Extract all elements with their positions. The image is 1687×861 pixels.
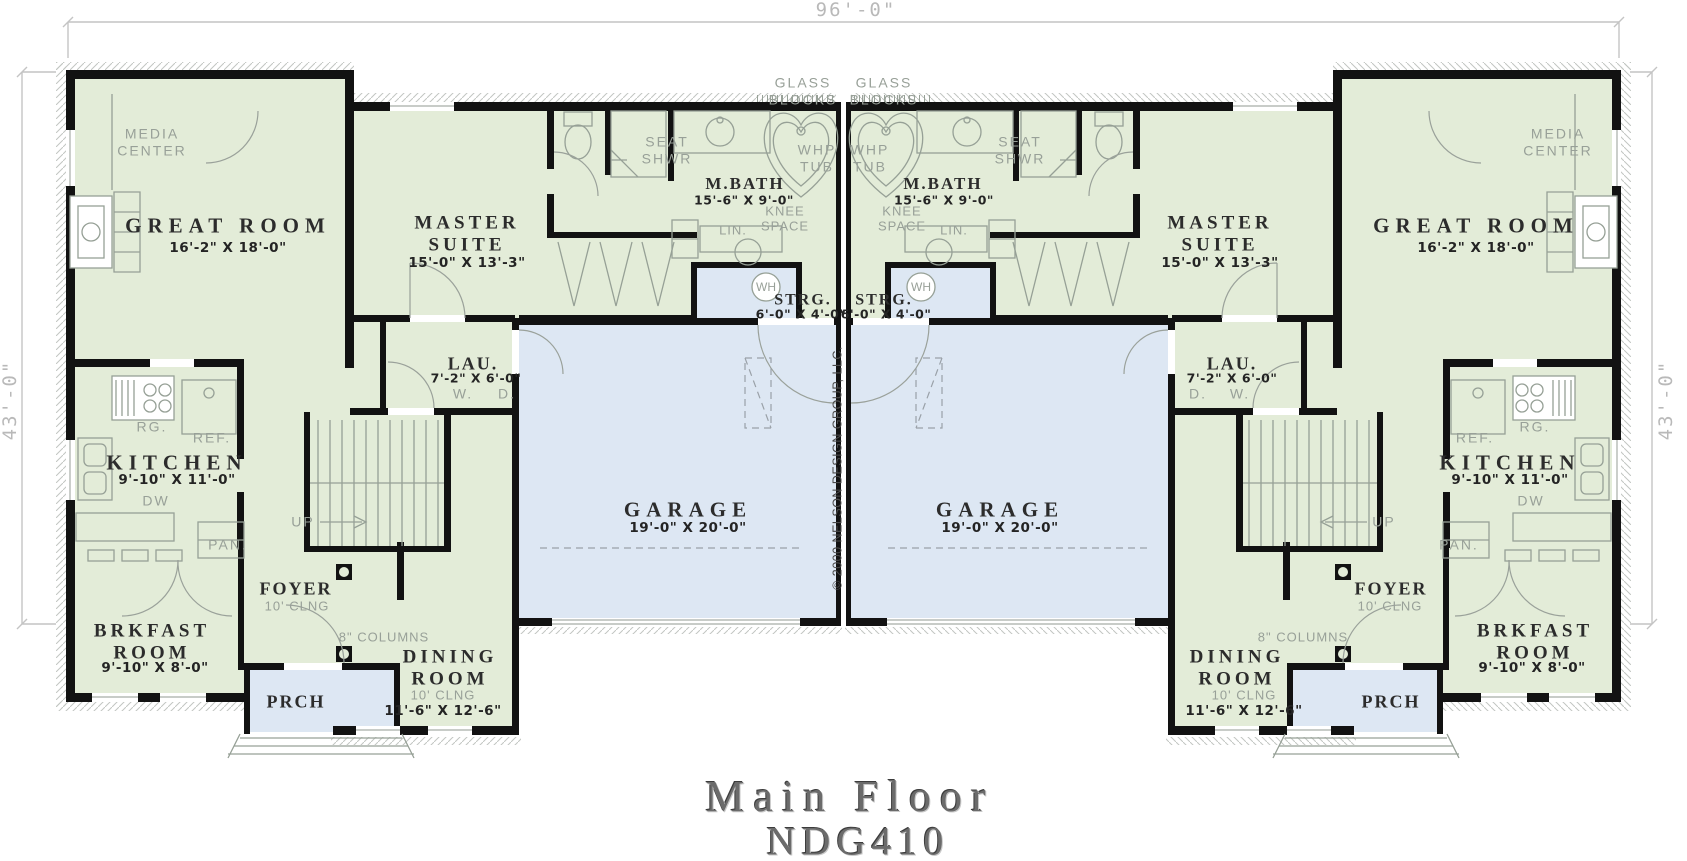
left-unit	[56, 62, 842, 758]
right-unit	[845, 62, 1631, 758]
right-unit-mirror	[845, 62, 1631, 758]
floor-plan-sheet: 96'-0" 43'-0" 43'-0" © 2000 NELSON DESIG…	[0, 0, 1687, 861]
floor-plan-drawing	[0, 0, 1687, 861]
